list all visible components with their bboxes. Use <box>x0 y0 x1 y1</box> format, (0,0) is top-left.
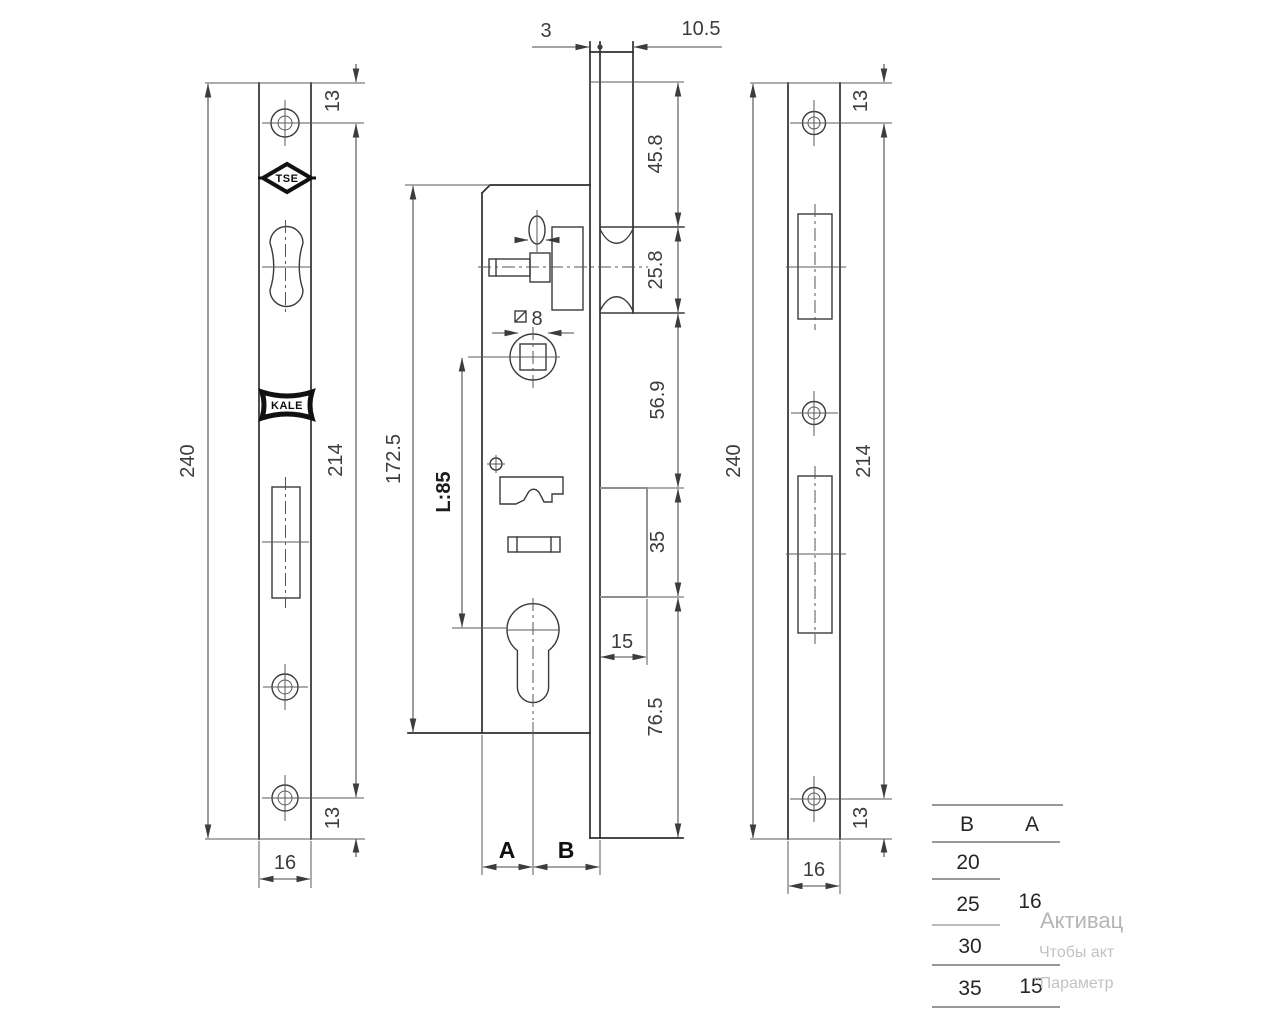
right-dimensions: 240 13 214 13 16 <box>723 64 884 894</box>
table-b-30: 30 <box>958 935 981 958</box>
dim-35: 35 <box>647 531 669 553</box>
windows-activation-watermark: Активац Чтобы акт "Параметр <box>1034 908 1124 992</box>
kale-logo-text: KALE <box>271 400 303 412</box>
right-faceplate-view: 240 13 214 13 16 <box>723 64 892 894</box>
dim-label-a: A <box>499 837 516 863</box>
dim-right-13-top: 13 <box>850 90 872 112</box>
faceplate-profile <box>590 42 683 838</box>
watermark-line1: Активац <box>1040 908 1124 933</box>
table-a-16: 16 <box>1018 890 1041 913</box>
dim-right-16: 16 <box>803 859 825 881</box>
dim-label-b: B <box>558 837 575 863</box>
table-b-20: 20 <box>956 851 979 874</box>
table-b-35: 35 <box>958 977 981 1000</box>
kale-logo: KALE <box>262 392 312 418</box>
dim-left-214: 214 <box>325 443 347 476</box>
dim-right-13-bottom: 13 <box>850 807 872 829</box>
left-roller-cutout <box>262 220 310 313</box>
dim-left-16: 16 <box>274 852 296 874</box>
left-deadbolt-cutout <box>262 477 309 608</box>
dim-l85: L:85 <box>433 471 455 512</box>
dim-10-5: 10.5 <box>682 18 721 40</box>
dim-45-8: 45.8 <box>645 135 667 174</box>
dim-spindle-square: 8 <box>531 308 542 330</box>
left-dimensions: 240 13 214 13 16 <box>177 64 356 888</box>
left-faceplate-view: TSE KALE 240 13 214 13 <box>177 64 365 888</box>
table-b-25: 25 <box>956 893 979 916</box>
dim-56-9: 56.9 <box>647 381 669 420</box>
watermark-line2: Чтобы акт <box>1039 944 1115 961</box>
middle-dimensions: 3 10.5 172.5 L:85 45.8 25.8 <box>383 18 722 875</box>
right-screw-holes <box>790 100 892 822</box>
table-header-a: A <box>1025 813 1039 836</box>
table-header-b: B <box>960 813 974 836</box>
dim-76-5: 76.5 <box>645 698 667 737</box>
internal-mechanism <box>487 455 563 552</box>
dim-3: 3 <box>540 20 551 42</box>
dim-right-214: 214 <box>853 444 875 477</box>
spindle-hub: 8 <box>492 308 574 390</box>
dim-25-8: 25.8 <box>645 251 667 290</box>
lock-body-side-view: 8 3 10.5 17 <box>383 18 722 875</box>
watermark-line3: "Параметр <box>1034 975 1114 992</box>
euro-cylinder-hole <box>506 598 560 720</box>
dim-right-240: 240 <box>723 444 745 477</box>
dim-left-13-top: 13 <box>322 90 344 112</box>
dim-15: 15 <box>611 631 633 653</box>
tse-logo-text: TSE <box>276 173 299 185</box>
left-screw-holes <box>262 100 364 821</box>
dim-left-13-bottom: 13 <box>322 807 344 829</box>
dim-left-240: 240 <box>177 444 199 477</box>
tse-logo: TSE <box>258 164 316 192</box>
deadbolt-thrown <box>600 488 647 597</box>
lock-technical-drawing: TSE KALE 240 13 214 13 <box>0 0 1280 1024</box>
dim-172-5: 172.5 <box>383 434 405 484</box>
